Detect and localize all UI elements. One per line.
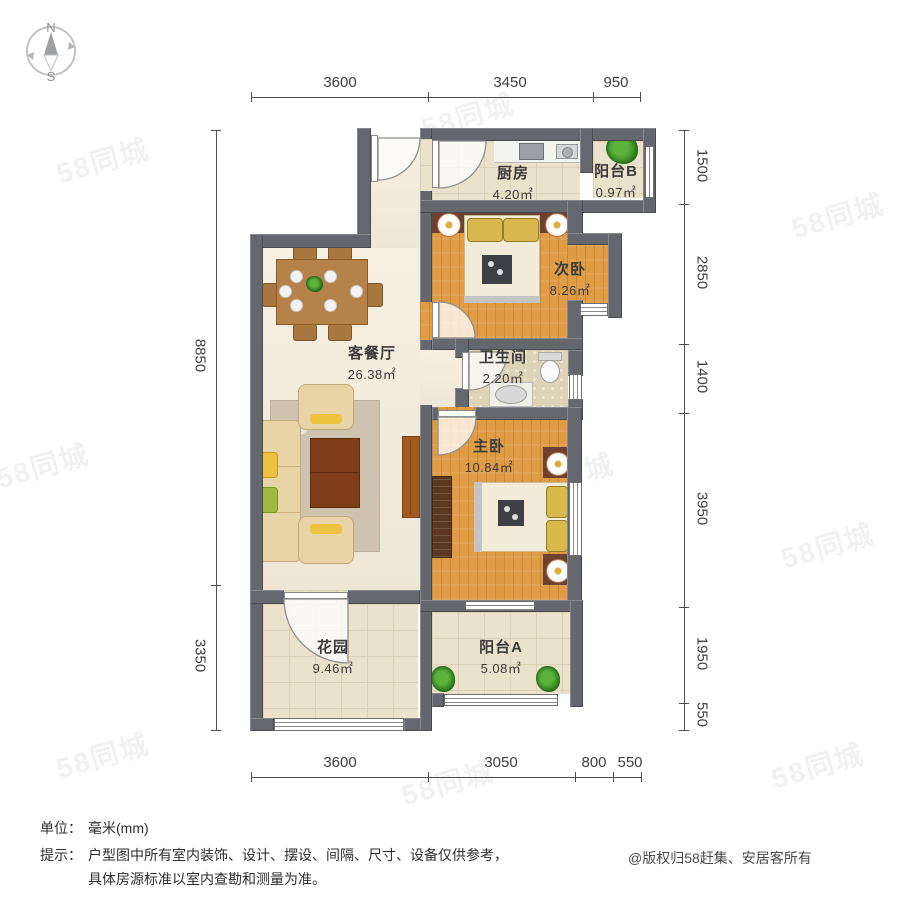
room-area: 8.26㎡ <box>550 280 591 299</box>
room-area: 9.46㎡ <box>313 658 354 677</box>
room-label-second-bedroom: 次卧 8.26㎡ <box>550 258 591 299</box>
unit-note: 单位：毫米(mm) <box>40 818 149 838</box>
room-name: 阳台B <box>594 160 638 181</box>
tip-text-1: 户型图中所有室内装饰、设计、摆设、间隔、尺寸、设备仅供参考， <box>88 847 508 863</box>
door-arcs <box>0 0 900 900</box>
room-name: 次卧 <box>550 258 591 279</box>
room-name: 卫生间 <box>479 346 527 367</box>
room-area: 2.20㎡ <box>479 368 527 387</box>
room-name: 厨房 <box>493 162 534 183</box>
door-arc-entrance <box>378 138 420 180</box>
room-label-master-bedroom: 主卧 10.84㎡ <box>465 435 514 476</box>
room-area: 10.84㎡ <box>465 457 514 476</box>
door-arc-kitchen <box>439 141 486 188</box>
room-name: 阳台A <box>479 636 523 657</box>
room-area: 5.08㎡ <box>479 658 523 677</box>
floorplan-canvas: 58同城 58同城 58同城 58同城 58同城 58同城 58同城 58同城 … <box>0 0 900 900</box>
room-name: 客餐厅 <box>348 342 397 363</box>
tip-note-line1: 提示：户型图中所有室内装饰、设计、摆设、间隔、尺寸、设备仅供参考， <box>40 845 508 865</box>
tip-text-2: 具体房源标准以室内查勘和测量为准。 <box>88 871 326 887</box>
room-name: 主卧 <box>465 435 514 456</box>
copyright-text: @版权归58赶集、安居客所有 <box>628 850 812 866</box>
room-label-balcony-a: 阳台A 5.08㎡ <box>479 636 523 677</box>
room-name: 花园 <box>313 636 354 657</box>
unit-label: 单位： <box>40 818 88 838</box>
tip-label: 提示： <box>40 845 88 865</box>
room-label-kitchen: 厨房 4.20㎡ <box>493 162 534 203</box>
copyright-note: @版权归58赶集、安居客所有 <box>628 848 812 868</box>
room-area: 0.97㎡ <box>594 182 638 201</box>
door-arc-second-bedroom <box>439 302 475 338</box>
room-label-bathroom: 卫生间 2.20㎡ <box>479 346 527 387</box>
room-area: 4.20㎡ <box>493 184 534 203</box>
room-label-living-dining: 客餐厅 26.38㎡ <box>348 342 397 383</box>
room-label-garden: 花园 9.46㎡ <box>313 636 354 677</box>
tip-note-line2: 具体房源标准以室内查勘和测量为准。 <box>88 869 326 889</box>
room-label-balcony-b: 阳台B 0.97㎡ <box>594 160 638 201</box>
room-area: 26.38㎡ <box>348 364 397 383</box>
unit-value: 毫米(mm) <box>88 820 149 836</box>
